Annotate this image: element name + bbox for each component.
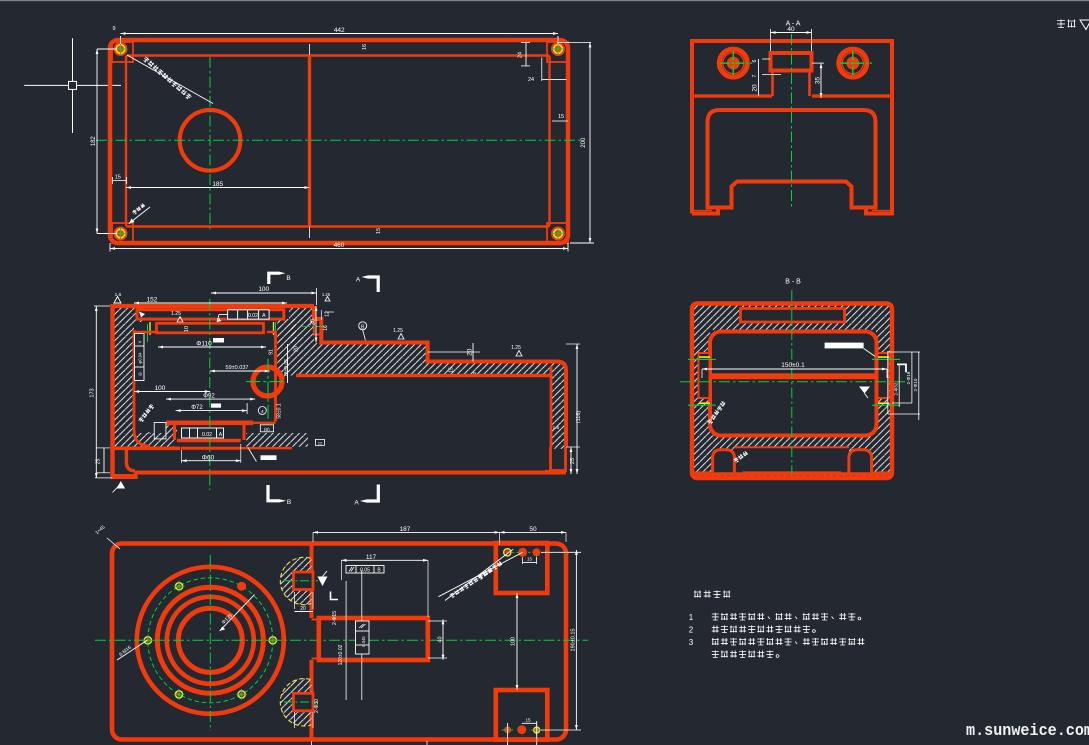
svg-text:3: 3 bbox=[689, 638, 694, 647]
svg-text:(116): (116) bbox=[576, 411, 582, 424]
svg-text:10: 10 bbox=[184, 326, 190, 332]
svg-text:117: 117 bbox=[366, 554, 377, 561]
svg-text:A: A bbox=[262, 313, 266, 319]
svg-text:15: 15 bbox=[449, 367, 455, 373]
svg-text:442: 442 bbox=[334, 27, 345, 34]
svg-text:A: A bbox=[219, 432, 223, 438]
svg-text:1.5: 1.5 bbox=[553, 425, 560, 431]
svg-text:15: 15 bbox=[558, 114, 564, 120]
svg-text:B: B bbox=[361, 324, 365, 330]
svg-text:20: 20 bbox=[752, 84, 759, 92]
svg-text:φ0.04: φ0.04 bbox=[138, 352, 143, 364]
svg-text:1.25: 1.25 bbox=[511, 345, 521, 351]
svg-text:25: 25 bbox=[96, 459, 102, 465]
svg-text:4: 4 bbox=[261, 409, 264, 415]
svg-text:1.25: 1.25 bbox=[393, 328, 403, 334]
svg-text:Φ60: Φ60 bbox=[202, 454, 215, 461]
svg-text:2-Φ32: 2-Φ32 bbox=[894, 382, 899, 395]
svg-text:190±0.15: 190±0.15 bbox=[571, 629, 577, 652]
svg-text:152: 152 bbox=[147, 297, 158, 304]
svg-text:185: 185 bbox=[212, 181, 223, 188]
svg-text:2-Φ15: 2-Φ15 bbox=[332, 611, 338, 625]
svg-text:40: 40 bbox=[787, 26, 795, 33]
svg-text:B: B bbox=[286, 275, 290, 282]
svg-text:182: 182 bbox=[91, 136, 97, 147]
svg-text:1: 1 bbox=[689, 613, 694, 622]
svg-text:6: 6 bbox=[752, 59, 758, 62]
svg-text:9: 9 bbox=[112, 26, 115, 32]
svg-text:2-Φ30: 2-Φ30 bbox=[314, 699, 320, 713]
svg-text:B - B: B - B bbox=[785, 279, 801, 286]
svg-text:7: 7 bbox=[752, 74, 758, 77]
svg-text:100: 100 bbox=[155, 385, 166, 392]
svg-text:15: 15 bbox=[376, 228, 382, 234]
svg-text:150±0.1: 150±0.1 bbox=[781, 362, 805, 369]
svg-text:200: 200 bbox=[581, 137, 587, 148]
svg-text:24: 24 bbox=[518, 52, 524, 58]
svg-text:35: 35 bbox=[815, 77, 822, 85]
svg-text:15: 15 bbox=[525, 718, 531, 723]
svg-text:40: 40 bbox=[438, 636, 444, 642]
svg-text:25: 25 bbox=[570, 458, 576, 464]
svg-text:78±0.05: 78±0.05 bbox=[284, 359, 290, 377]
svg-text:2-Φ16: 2-Φ16 bbox=[906, 371, 911, 384]
svg-text:35: 35 bbox=[310, 318, 317, 326]
svg-text:58±0.1: 58±0.1 bbox=[277, 403, 283, 418]
svg-text:0.02: 0.02 bbox=[248, 313, 258, 319]
svg-text:Φ72: Φ72 bbox=[191, 405, 203, 411]
svg-text:0.045: 0.045 bbox=[361, 636, 366, 647]
svg-text:Φ92: Φ92 bbox=[203, 394, 215, 400]
svg-text:12: 12 bbox=[318, 441, 322, 445]
svg-text:91: 91 bbox=[269, 349, 275, 355]
svg-text:15: 15 bbox=[115, 175, 121, 181]
svg-text:20: 20 bbox=[300, 606, 306, 612]
svg-text:Y: Y bbox=[138, 340, 143, 343]
svg-text:A: A bbox=[356, 277, 361, 284]
svg-text:24: 24 bbox=[528, 77, 534, 83]
svg-text:120±0.02: 120±0.02 bbox=[338, 644, 344, 665]
svg-text:15: 15 bbox=[527, 557, 533, 562]
svg-text:50: 50 bbox=[529, 526, 537, 533]
svg-text:59±0.037: 59±0.037 bbox=[226, 365, 249, 371]
svg-text:100: 100 bbox=[511, 637, 517, 646]
svg-text:2: 2 bbox=[689, 626, 694, 635]
svg-text:460: 460 bbox=[334, 242, 345, 249]
svg-text:1.25: 1.25 bbox=[322, 292, 331, 297]
svg-text:0.02: 0.02 bbox=[202, 432, 212, 438]
svg-text:187: 187 bbox=[400, 526, 411, 533]
svg-text:A: A bbox=[354, 500, 359, 507]
svg-text:m.sunweice.com: m.sunweice.com bbox=[966, 722, 1089, 741]
svg-text:173: 173 bbox=[89, 388, 95, 397]
svg-text:16: 16 bbox=[362, 44, 368, 50]
svg-text:100: 100 bbox=[258, 286, 269, 293]
svg-text:1.25: 1.25 bbox=[171, 311, 181, 317]
svg-text:16: 16 bbox=[323, 325, 329, 331]
svg-text:2: 2 bbox=[472, 371, 478, 374]
svg-text:B: B bbox=[287, 499, 291, 506]
svg-text:2-Φ10: 2-Φ10 bbox=[913, 378, 918, 391]
svg-text:Φ110: Φ110 bbox=[196, 341, 212, 348]
svg-text:20: 20 bbox=[294, 346, 300, 352]
